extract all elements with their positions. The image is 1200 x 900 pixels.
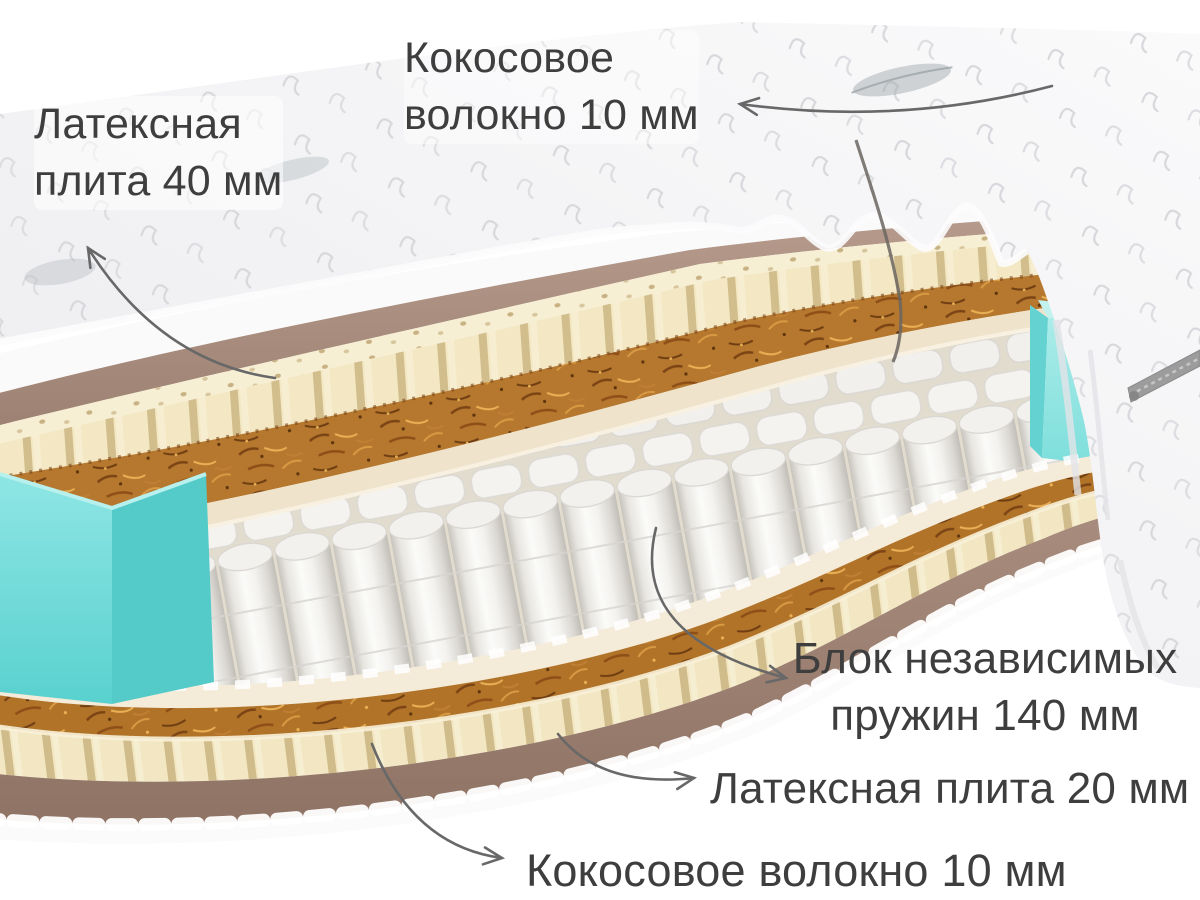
side-foam-left (0, 474, 214, 704)
label-latex-bottom: Латексная плита 20 мм (710, 760, 1189, 817)
label-coconut-bottom: Кокосовое волокно 10 мм (526, 842, 1067, 899)
label-spring-block-line2: пружин 140 мм (770, 687, 1200, 744)
label-latex-top: Латексная плита 40 мм (34, 96, 283, 210)
label-latex-top-line2: плита 40 мм (34, 153, 283, 210)
label-latex-top-line1: Латексная (34, 96, 283, 153)
label-coconut-bottom-text: Кокосовое волокно 10 мм (526, 842, 1067, 899)
label-coconut-top: Кокосовое волокно 10 мм (404, 30, 699, 144)
mattress-diagram: Латексная плита 40 мм Кокосовое волокно … (0, 0, 1200, 900)
label-spring-block: Блок независимых пружин 140 мм (770, 630, 1200, 744)
label-coconut-top-line1: Кокосовое (404, 30, 699, 87)
label-spring-block-line1: Блок независимых (770, 630, 1200, 687)
label-coconut-top-line2: волокно 10 мм (404, 87, 699, 144)
zipper-slider (1129, 391, 1139, 401)
label-latex-bottom-text: Латексная плита 20 мм (710, 760, 1189, 817)
